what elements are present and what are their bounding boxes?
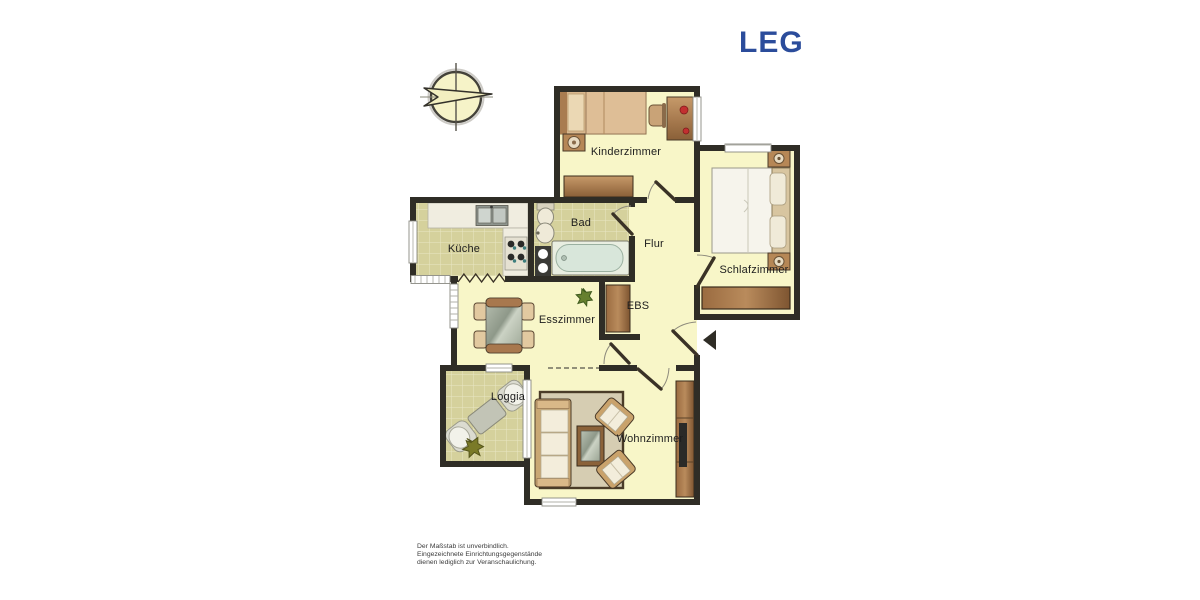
desk-chair [649, 103, 666, 128]
kitchen-sink [476, 206, 508, 226]
room-label-wohnzimmer: Wohnzimmer [617, 433, 684, 445]
room-label-loggia: Loggia [491, 391, 525, 403]
washing-machine [535, 246, 551, 276]
stove [505, 237, 527, 270]
child-nightstand [563, 134, 585, 151]
sofa [535, 399, 571, 487]
window-kueche-bottom [411, 276, 450, 284]
room-label-bad: Bad [571, 217, 591, 229]
room-label-kinderzimmer: Kinderzimmer [591, 146, 661, 158]
disclaimer-line: dienen lediglich zur Veranschaulichung. [417, 559, 542, 567]
child-bed [560, 91, 646, 134]
nightstand-lamp-top [768, 150, 790, 167]
room-label-flur: Flur [644, 238, 664, 250]
room-label-kueche: Küche [448, 243, 480, 255]
disclaimer-line: Eingezeichnete Einrichtungsgegenstände [417, 551, 542, 559]
wardrobe [702, 287, 790, 309]
coffee-table [577, 426, 604, 466]
compass-rose-icon [420, 63, 493, 131]
room-label-esszimmer: Esszimmer [539, 314, 595, 326]
bathtub [552, 241, 629, 275]
leg-logo: LEG [739, 26, 804, 60]
bath-sink [536, 223, 554, 243]
floorplan-page: LEG Kinderzimmer Schlafzimmer Bad Flur K… [0, 0, 1200, 600]
disclaimer-line: Der Maßstab ist unverbindlich. [417, 543, 542, 551]
room-label-schlafzimmer: Schlafzimmer [719, 264, 788, 276]
disclaimer-text: Der Maßstab ist unverbindlich. Eingezeic… [417, 543, 542, 566]
window-esszimmer [450, 284, 458, 328]
entrance-arrow-icon [703, 330, 716, 350]
double-bed [712, 168, 790, 253]
sideboard [564, 176, 633, 197]
room-label-ebs: EBS [627, 300, 650, 312]
desk [667, 97, 693, 140]
floorplan-drawing [0, 0, 1200, 600]
